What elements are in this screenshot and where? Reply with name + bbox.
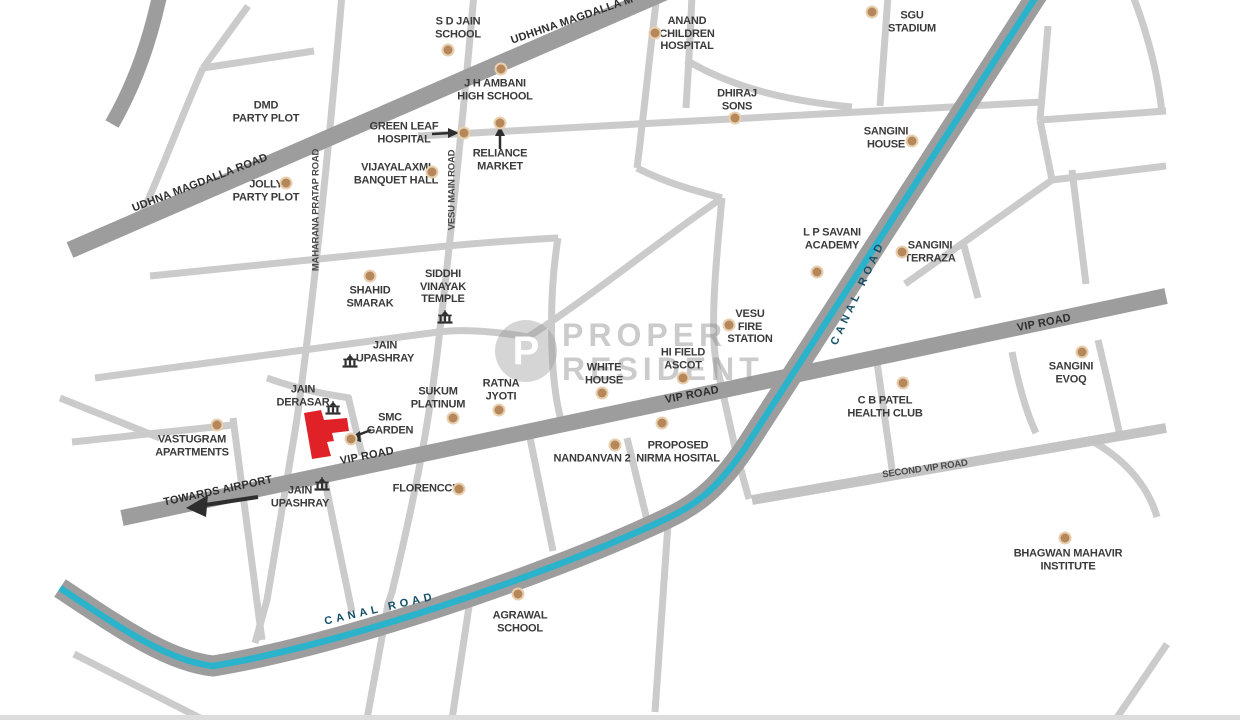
- watermark-line2: RESIDENT: [562, 352, 764, 386]
- watermark: P PROPER RESIDENT: [0, 0, 1240, 720]
- watermark-logo-icon: P: [495, 320, 557, 382]
- watermark-line1: PROPER: [562, 318, 764, 352]
- watermark-text: PROPER RESIDENT: [562, 318, 764, 386]
- location-map: P PROPER RESIDENT UDHNA MAGDALLA ROADUDH…: [0, 0, 1240, 720]
- watermark-logo-letter: P: [513, 329, 540, 374]
